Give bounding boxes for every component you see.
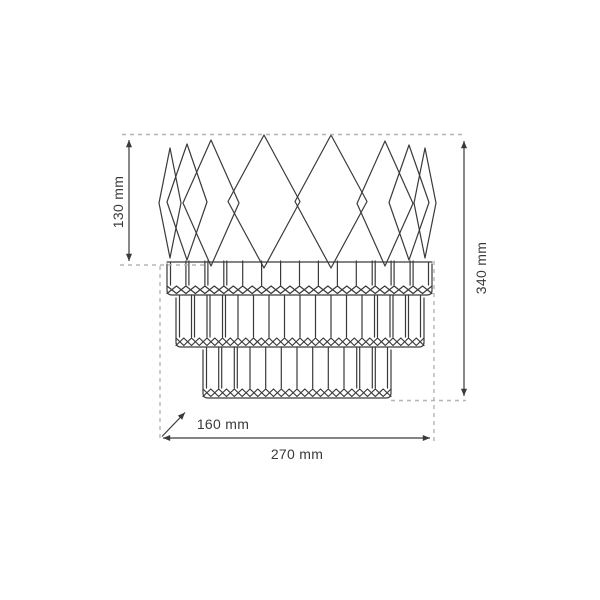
dimension-label-crown-height: 130 mm bbox=[110, 176, 126, 228]
crown-diamond bbox=[295, 135, 367, 268]
tier-bead-zigzag bbox=[203, 389, 391, 397]
dimension-label-width: 270 mm bbox=[271, 446, 323, 462]
dimension-diagram: 130 mm 340 mm 160 mm 270 mm bbox=[0, 0, 600, 600]
lamp-drawing bbox=[159, 135, 436, 398]
dimension-label-depth: 160 mm bbox=[197, 416, 249, 432]
diagram-canvas: 130 mm 340 mm 160 mm 270 mm bbox=[0, 0, 600, 600]
dimension-label-total-height: 340 mm bbox=[473, 242, 489, 294]
dimension-line-depth-arrow bbox=[162, 413, 185, 437]
crown-diamond bbox=[159, 148, 181, 258]
crown-diamond bbox=[414, 148, 436, 258]
